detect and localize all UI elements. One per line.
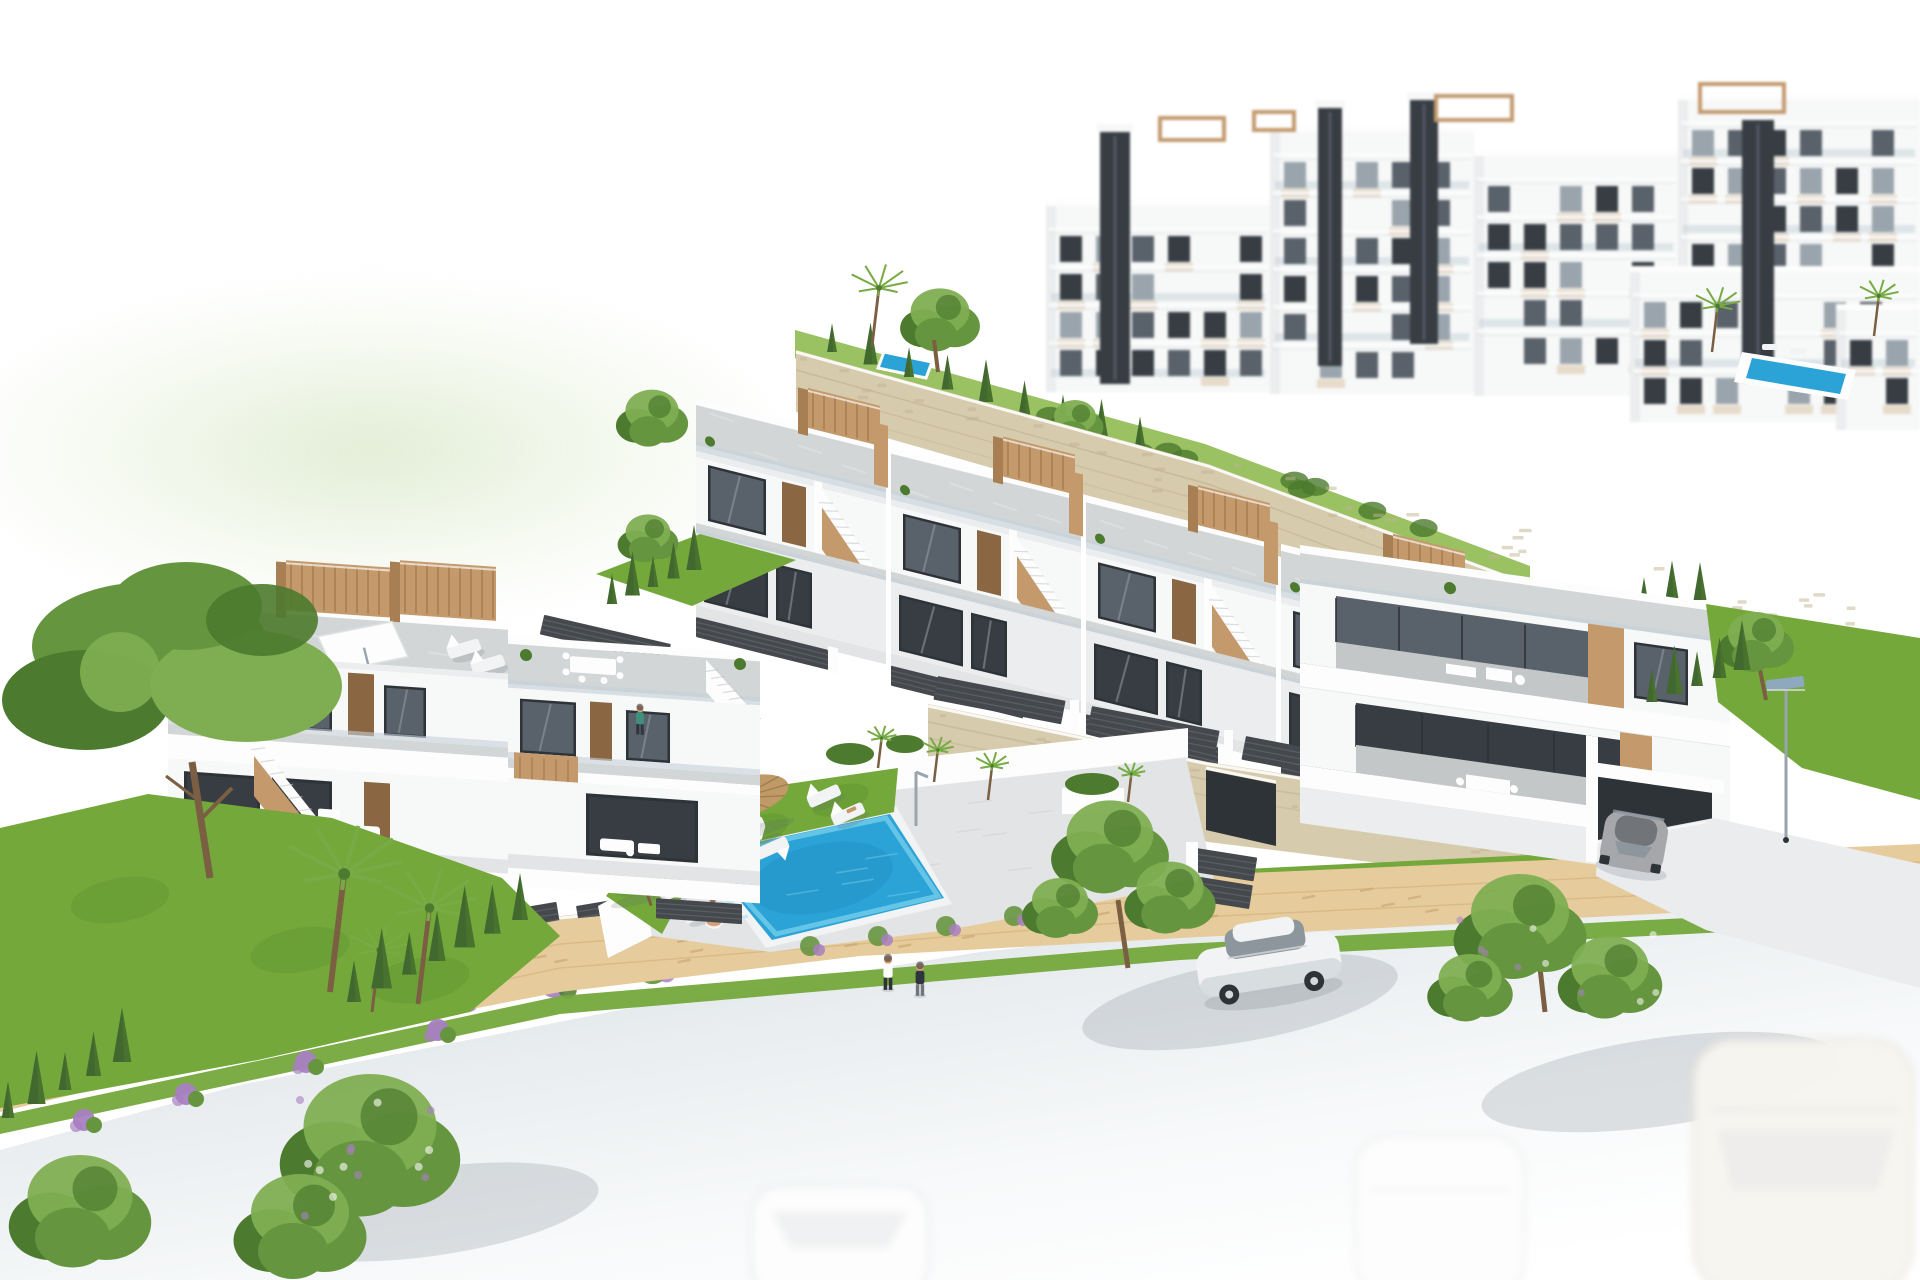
- render-canvas: [0, 0, 1920, 1280]
- faded-parked-cars: [752, 1040, 1912, 1280]
- faded-car-3: [1694, 1040, 1912, 1280]
- townhouse-unit: [696, 360, 888, 687]
- pedestrian-1: [882, 954, 895, 992]
- scene: [0, 0, 1920, 1280]
- faded-car-1: [752, 1186, 928, 1280]
- faded-car-2: [1356, 1136, 1524, 1280]
